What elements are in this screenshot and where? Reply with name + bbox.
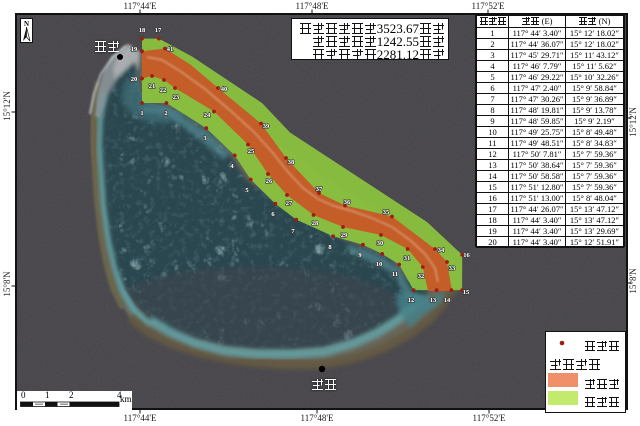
svg-text:25: 25 xyxy=(248,148,255,155)
svg-text:23: 23 xyxy=(173,94,180,101)
svg-text:10: 10 xyxy=(376,261,383,268)
svg-text:40: 40 xyxy=(221,86,228,93)
svg-text:38: 38 xyxy=(288,159,295,166)
svg-text:30: 30 xyxy=(377,240,384,247)
svg-text:11: 11 xyxy=(392,271,398,278)
svg-text:19: 19 xyxy=(131,46,138,53)
svg-text:39: 39 xyxy=(263,123,270,130)
svg-text:36: 36 xyxy=(344,199,351,206)
svg-text:34: 34 xyxy=(438,247,445,254)
svg-text:37: 37 xyxy=(316,186,323,193)
svg-text:15: 15 xyxy=(463,289,470,296)
svg-text:27: 27 xyxy=(286,200,293,207)
svg-text:22: 22 xyxy=(160,87,167,94)
svg-text:29: 29 xyxy=(341,232,348,239)
svg-text:33: 33 xyxy=(449,265,456,272)
svg-text:35: 35 xyxy=(383,209,390,216)
svg-text:26: 26 xyxy=(266,178,273,185)
svg-text:31: 31 xyxy=(404,255,411,262)
svg-text:28: 28 xyxy=(312,220,319,227)
svg-text:16: 16 xyxy=(463,252,470,259)
svg-text:41: 41 xyxy=(167,46,174,53)
svg-text:20: 20 xyxy=(131,76,138,83)
svg-text:2: 2 xyxy=(164,110,167,117)
svg-text:32: 32 xyxy=(418,273,425,280)
svg-text:1: 1 xyxy=(140,110,143,117)
svg-text:14: 14 xyxy=(444,297,451,304)
svg-text:18: 18 xyxy=(139,27,146,34)
svg-text:17: 17 xyxy=(155,27,162,34)
svg-text:12: 12 xyxy=(408,297,415,304)
svg-text:24: 24 xyxy=(204,112,211,119)
svg-text:13: 13 xyxy=(430,297,437,304)
svg-text:21: 21 xyxy=(149,83,156,90)
